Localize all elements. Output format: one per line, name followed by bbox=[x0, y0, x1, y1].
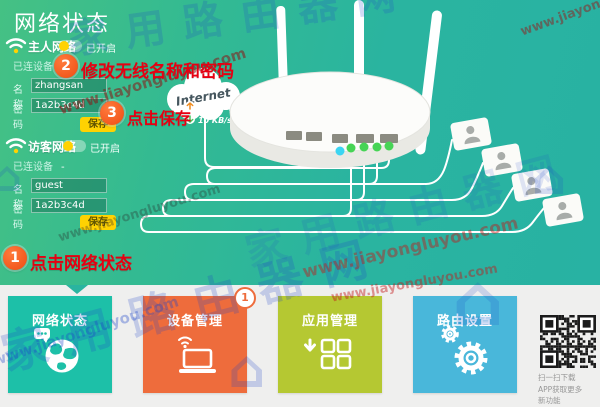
download-arrow-icon bbox=[306, 340, 315, 350]
globe-icon bbox=[8, 296, 112, 393]
qr-caption: 扫一扫下载 APP获取更多 新功能 bbox=[538, 372, 600, 407]
wifi-toggle[interactable] bbox=[58, 40, 82, 52]
apps-icon bbox=[278, 296, 382, 393]
connected-devices-value: - bbox=[61, 162, 65, 173]
qr-code bbox=[540, 315, 596, 372]
step-badge-1: 1 bbox=[3, 246, 27, 270]
toggle-status: 已开启 bbox=[86, 40, 116, 55]
tile-router-settings[interactable]: 路由设置 bbox=[413, 296, 517, 393]
connected-devices-row: 已连设备- bbox=[13, 158, 65, 173]
wifi-icon bbox=[5, 137, 27, 154]
ssid-input[interactable] bbox=[31, 178, 107, 193]
router-admin-page: 家用路由器网 家用路由器网 家用路由器网 www.jiayongluyou.co… bbox=[0, 0, 600, 407]
gear-icon bbox=[413, 296, 517, 393]
tile-device-management[interactable]: 1 设备管理 bbox=[143, 296, 247, 393]
password-label: 密码 bbox=[13, 101, 23, 131]
toggle-knob bbox=[63, 141, 73, 151]
step-text-3: 点击保存 bbox=[127, 105, 191, 129]
laptop-icon bbox=[143, 296, 247, 393]
password-label: 密码 bbox=[13, 201, 23, 231]
toggle-knob bbox=[59, 41, 69, 51]
password-input[interactable] bbox=[31, 98, 107, 113]
step-badge-2: 2 bbox=[54, 54, 78, 78]
password-input[interactable] bbox=[31, 198, 107, 213]
notification-badge: 1 bbox=[234, 287, 256, 309]
step-text-2: 修改无线名称和密码 bbox=[81, 57, 234, 82]
wireless-settings-panel: 主人网络 已开启 已连设备- 名称 密码 保存 访客网络 bbox=[0, 0, 235, 285]
tile-app-management[interactable]: 应用管理 bbox=[278, 296, 382, 393]
band-pointer-arrow bbox=[66, 285, 88, 294]
wifi-icon bbox=[5, 37, 27, 54]
wifi-toggle[interactable] bbox=[62, 140, 86, 152]
step-text-1: 点击网络状态 bbox=[30, 249, 132, 274]
tile-network-status[interactable]: 网络状态 bbox=[8, 296, 112, 393]
save-button[interactable]: 保存 bbox=[80, 215, 116, 230]
step-badge-3: 3 bbox=[100, 101, 124, 125]
toggle-status: 已开启 bbox=[90, 140, 120, 155]
